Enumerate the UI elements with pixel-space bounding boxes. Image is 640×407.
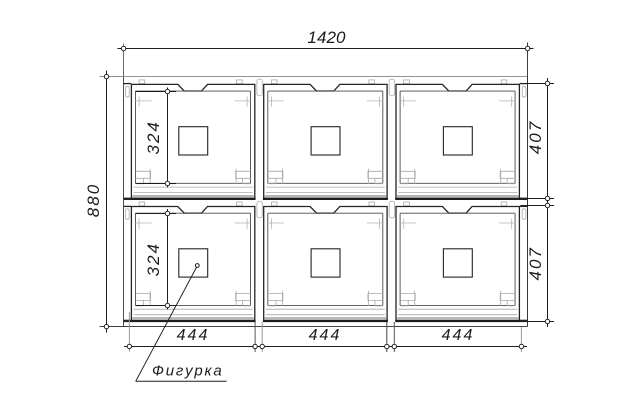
svg-text:324: 324 (144, 120, 163, 154)
svg-text:880: 880 (84, 183, 103, 217)
svg-text:1420: 1420 (307, 28, 346, 47)
svg-text:Фигурка: Фигурка (152, 363, 224, 380)
svg-text:407: 407 (526, 120, 545, 154)
svg-text:324: 324 (144, 242, 163, 276)
svg-text:444: 444 (177, 327, 210, 344)
svg-text:444: 444 (442, 327, 475, 344)
svg-text:407: 407 (526, 246, 545, 280)
svg-text:444: 444 (309, 327, 342, 344)
